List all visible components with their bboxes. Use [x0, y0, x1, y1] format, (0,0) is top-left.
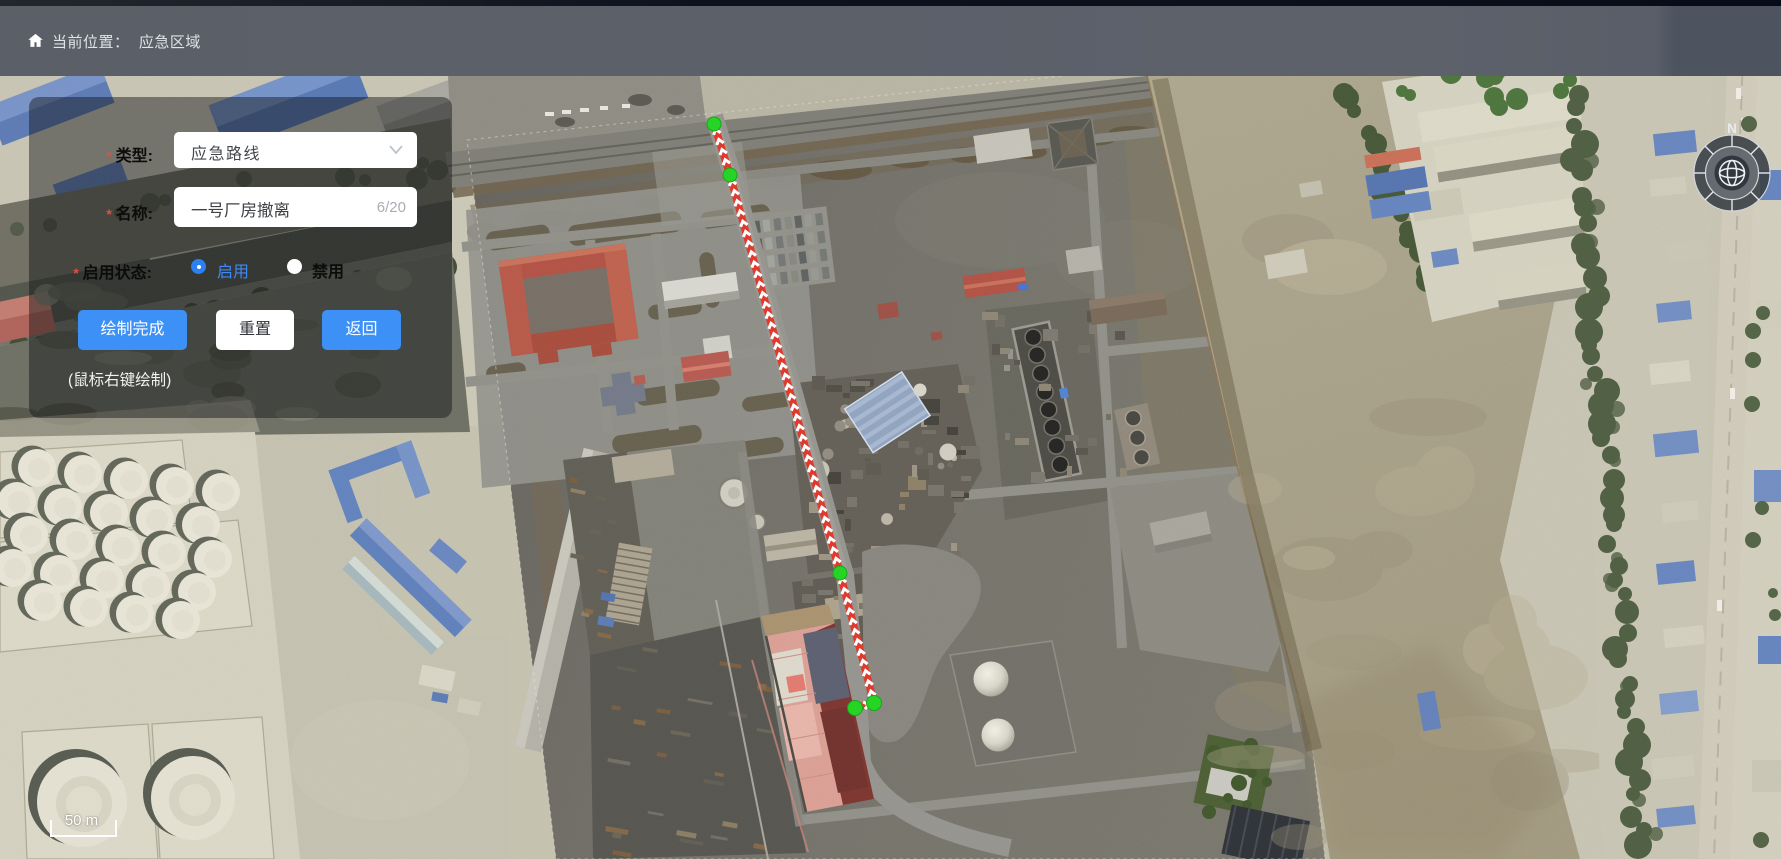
svg-text:N: N: [1727, 121, 1737, 136]
